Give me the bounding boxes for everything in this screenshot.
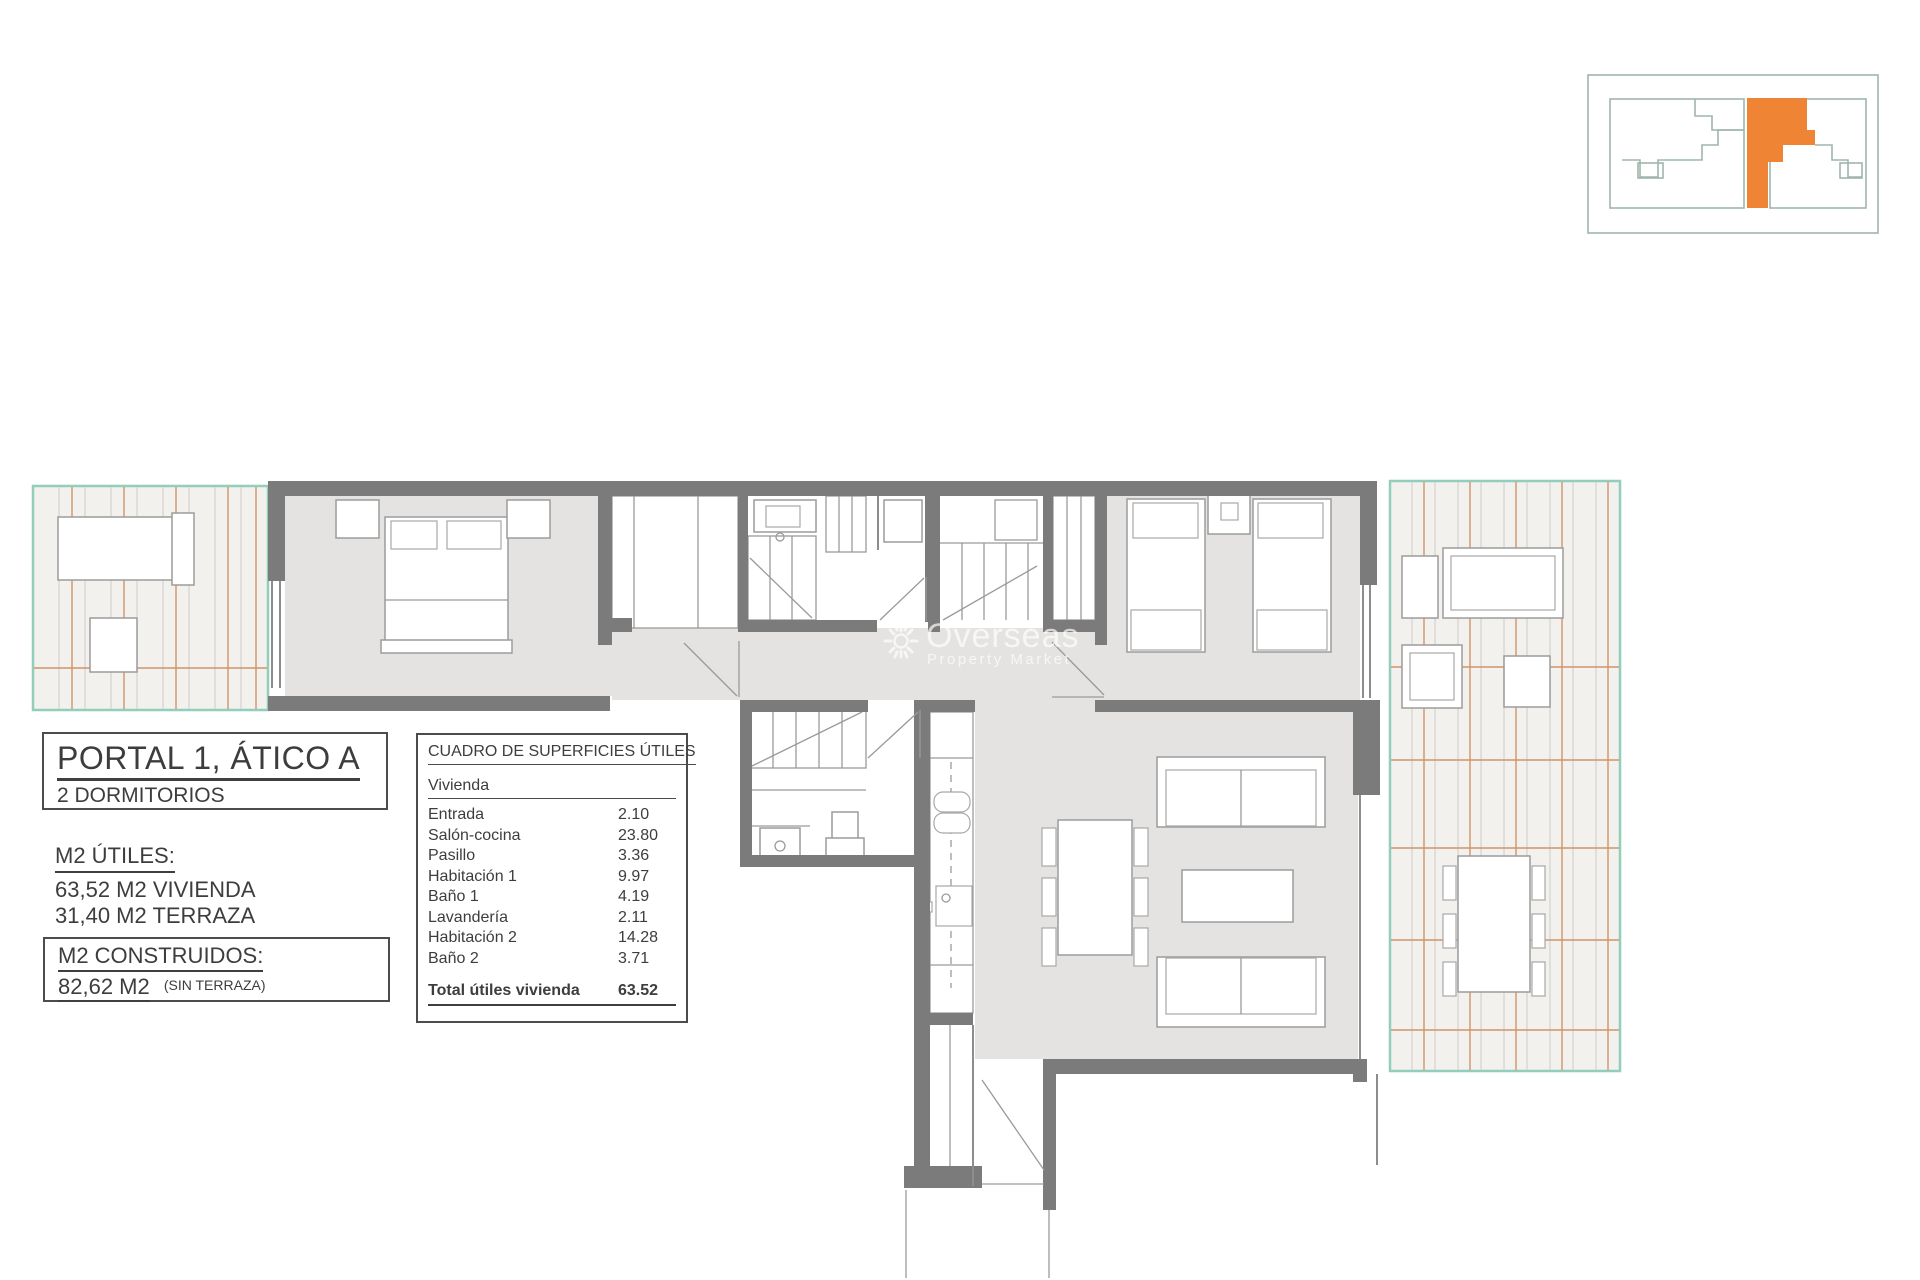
sink-vanity — [760, 828, 800, 856]
outdoor-coffee-table — [1504, 656, 1550, 707]
kitchen — [924, 712, 973, 1013]
bed-footboard — [381, 640, 512, 653]
usable-area-terraza: 31,40 M2 TERRAZA — [55, 903, 385, 929]
pillow — [1258, 503, 1323, 538]
sun-lounger — [58, 517, 178, 580]
left-terrace — [33, 486, 268, 710]
outdoor-armchair — [1402, 556, 1438, 618]
built-area-heading: M2 CONSTRUIDOS: — [58, 943, 263, 972]
page-subtitle: 2 DORMITORIOS — [57, 784, 386, 808]
pillow — [391, 521, 437, 549]
table-row: Baño 1 4.19 — [428, 887, 676, 908]
pillow — [447, 521, 501, 549]
usable-area-heading: M2 ÚTILES: — [55, 843, 175, 873]
watermark-tagline: Property Market — [927, 651, 1071, 668]
kitchen-sink — [934, 792, 970, 812]
cooktop — [936, 886, 972, 926]
table-row: Baño 2 3.71 — [428, 949, 676, 970]
nightstand — [336, 500, 379, 538]
bathroom-1 — [748, 496, 922, 620]
right-terrace — [1390, 481, 1620, 1071]
kitchen-counter — [930, 712, 973, 1013]
watermark-name: Overseas — [926, 617, 1080, 655]
closet-hab2 — [1053, 496, 1095, 620]
floorplan-sheet: Overseas Property Market PORTAL 1, ÁTICO… — [0, 0, 1920, 1280]
built-area-value: 82,62 M2 — [58, 974, 150, 1002]
built-area-note: (SIN TERRAZA) — [164, 977, 266, 993]
toilet — [832, 812, 858, 840]
shower — [748, 536, 816, 620]
pillow — [1133, 503, 1198, 538]
stairs — [940, 500, 1043, 620]
floor-plan: Overseas Property Market — [0, 0, 1920, 1280]
usable-area-vivienda: 63,52 M2 VIVIENDA — [55, 877, 385, 903]
usable-area-block: M2 ÚTILES: 63,52 M2 VIVIENDA 31,40 M2 TE… — [55, 843, 385, 929]
dining-table — [1058, 820, 1132, 955]
surface-table-heading: CUADRO DE SUPERFICIES ÚTILES — [428, 743, 696, 765]
table-row: Habitación 1 9.97 — [428, 867, 676, 888]
table-row: Pasillo 3.36 — [428, 846, 676, 867]
sun-lounger-back — [172, 513, 194, 585]
table-row: Salón-cocina 23.80 — [428, 826, 676, 847]
table-row: Lavandería 2.11 — [428, 908, 676, 929]
table-row: Habitación 2 14.28 — [428, 928, 676, 949]
surface-table-group: Vivienda — [428, 777, 676, 799]
built-area-box: M2 CONSTRUIDOS: 82,62 M2 (SIN TERRAZA) — [43, 937, 390, 1002]
nightstand — [507, 500, 550, 538]
table-row: Entrada 2.10 — [428, 805, 676, 826]
bathroom-2 — [750, 710, 866, 856]
side-table — [90, 618, 137, 672]
washer — [884, 500, 922, 542]
surface-table: CUADRO DE SUPERFICIES ÚTILES Vivienda En… — [416, 733, 688, 1023]
title-box: PORTAL 1, ÁTICO A 2 DORMITORIOS — [42, 732, 388, 810]
table-total-row: Total útiles vivienda 63.52 — [428, 982, 676, 1006]
laundry-shelf — [826, 496, 866, 552]
coffee-table — [1182, 870, 1293, 922]
key-plan — [1588, 75, 1878, 233]
page-title: PORTAL 1, ÁTICO A — [57, 740, 360, 781]
outdoor-dining-table — [1458, 856, 1530, 992]
closet-hab1 — [612, 496, 738, 628]
